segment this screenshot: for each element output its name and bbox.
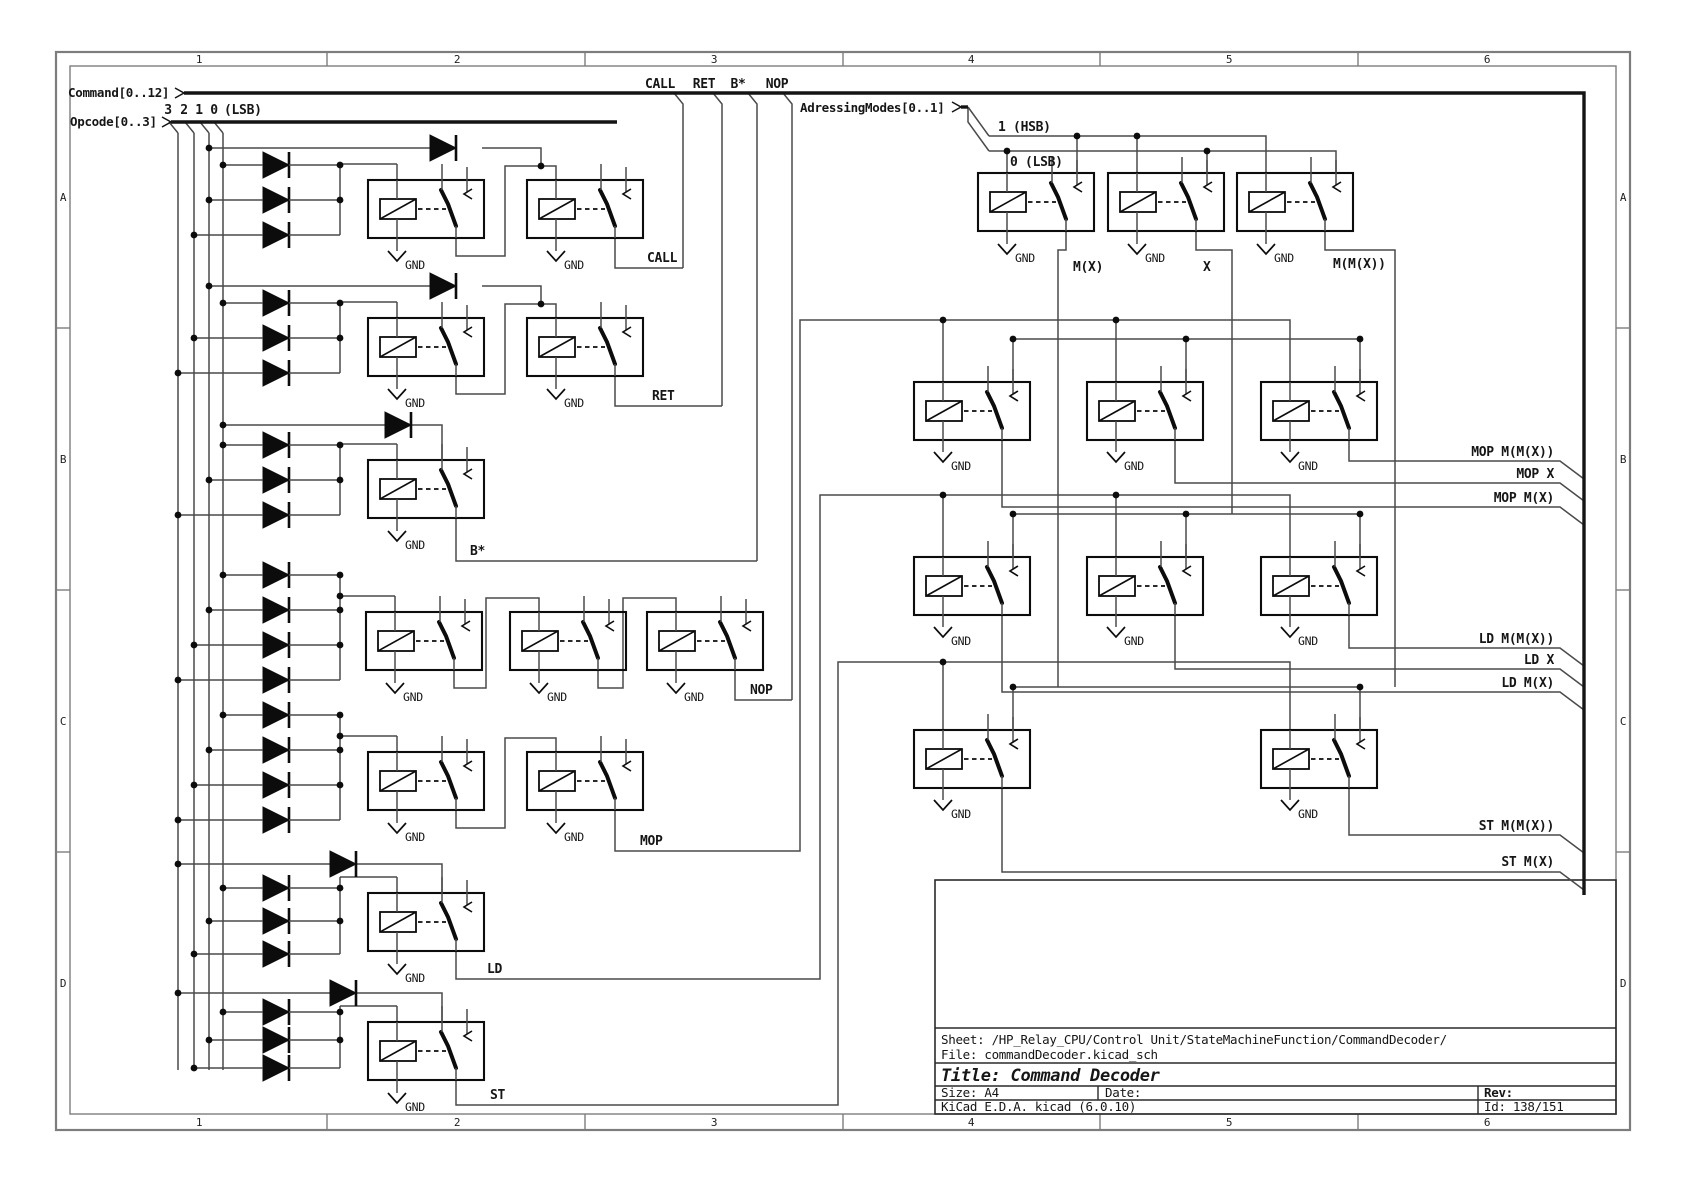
schematic-label: 2 — [180, 103, 188, 118]
junction-dot — [220, 885, 227, 892]
relay-switch-arm — [987, 740, 1002, 776]
junction-dot — [206, 1037, 213, 1044]
titleblock-rev: Rev: — [1484, 1085, 1513, 1100]
diode-triangle — [430, 273, 456, 299]
schematic-label: CALL — [645, 77, 676, 92]
frame-column-ref: 4 — [968, 53, 975, 66]
relay-symbol — [1108, 157, 1224, 231]
junction-dot — [337, 593, 344, 600]
gnd-label: GND — [564, 830, 584, 844]
diode-symbol — [223, 290, 340, 316]
relay-coil-diagonal — [380, 912, 416, 932]
diode-triangle — [263, 360, 289, 386]
relay-coil-diagonal — [659, 631, 695, 651]
diode-triangle — [263, 667, 289, 693]
junction-dot — [175, 817, 182, 824]
gnd-label: GND — [405, 1100, 425, 1114]
relay-switch-arm — [441, 190, 456, 226]
relay-contact-arrow-icon — [464, 902, 472, 912]
gnd-symbol: GND — [388, 376, 425, 410]
junction-dot — [175, 512, 182, 519]
wire — [482, 148, 541, 166]
relay-coil-diagonal — [926, 401, 962, 421]
schematic-label: 0 (LSB) — [1010, 155, 1063, 170]
diode-triangle — [430, 135, 456, 161]
relay-contact-arrow-icon — [1183, 566, 1191, 576]
gnd-symbol: GND — [388, 1080, 425, 1114]
diode-symbol — [330, 980, 356, 1006]
junction-dot — [175, 861, 182, 868]
gnd-chevron-icon — [386, 683, 404, 693]
gnd-chevron-icon — [547, 389, 565, 399]
junction-dot — [175, 990, 182, 997]
junction-dot — [337, 442, 344, 449]
gnd-label: GND — [405, 258, 425, 272]
gnd-chevron-icon — [530, 683, 548, 693]
wire — [713, 93, 722, 406]
relay-contact-arrow-icon — [606, 621, 614, 631]
gnd-label: GND — [564, 258, 584, 272]
diode-triangle — [263, 597, 289, 623]
schematic-label: M(M(X)) — [1333, 257, 1386, 272]
junction-dot — [1357, 684, 1364, 691]
gnd-label: GND — [405, 971, 425, 985]
diode-triangle — [263, 222, 289, 248]
relay-contact-arrow-icon — [1204, 182, 1212, 192]
relay-contact-arrow-icon — [464, 327, 472, 337]
frame-column-ref: 3 — [711, 53, 717, 66]
relay-symbol — [368, 877, 484, 951]
relay-switch-arm — [439, 622, 454, 658]
junction-dot — [538, 301, 545, 308]
diode-triangle — [263, 941, 289, 967]
frame-column-ref: 1 — [196, 1116, 202, 1129]
gnd-chevron-icon — [388, 251, 406, 261]
wire — [968, 107, 989, 136]
diode-symbol — [194, 941, 340, 967]
junction-dot — [1183, 336, 1190, 343]
relay-switch-arm — [720, 622, 735, 658]
junction-dot — [206, 607, 213, 614]
schematic-label: M(X) — [1073, 260, 1103, 275]
wire — [674, 93, 683, 268]
junction-dot — [1074, 133, 1081, 140]
titleblock-id: Id: 138/151 — [1484, 1099, 1563, 1114]
frame-row-ref: B — [1620, 453, 1627, 466]
gnd-chevron-icon — [1257, 244, 1275, 254]
relay-coil-diagonal — [1099, 576, 1135, 596]
relay-contact-arrow-icon — [464, 761, 472, 771]
gnd-label: GND — [951, 459, 971, 473]
junction-dot — [1010, 684, 1017, 691]
gnd-symbol: GND — [547, 238, 584, 272]
diode-triangle — [263, 562, 289, 588]
diode-triangle — [263, 632, 289, 658]
junction-dot — [191, 642, 198, 649]
diode-symbol — [209, 597, 340, 623]
relay-contact-arrow-icon — [623, 761, 631, 771]
junction-dot — [337, 477, 344, 484]
diode-triangle — [330, 851, 356, 877]
relay-switch-arm — [1334, 740, 1349, 776]
wire-layer — [169, 93, 1584, 1105]
gnd-symbol: GND — [388, 518, 425, 552]
relay-switch-arm — [987, 567, 1002, 603]
diode-symbol — [223, 432, 340, 458]
gnd-chevron-icon — [667, 683, 685, 693]
junction-dot — [1134, 133, 1141, 140]
schematic-label: MOP X — [1516, 467, 1554, 482]
diode-triangle — [263, 325, 289, 351]
schematic-page: 112233445566AABBCCDD Sheet: /HP_Relay_CP… — [0, 0, 1684, 1191]
frame-column-ref: 5 — [1226, 53, 1232, 66]
gnd-chevron-icon — [1107, 627, 1125, 637]
relay-symbol — [368, 164, 484, 238]
relay-contact-arrow-icon — [1357, 391, 1365, 401]
diode-triangle — [385, 412, 411, 438]
gnd-chevron-icon — [388, 1093, 406, 1103]
relay-switch-arm — [1160, 567, 1175, 603]
junction-dot — [1010, 511, 1017, 518]
relay-symbol — [366, 596, 482, 670]
gnd-label: GND — [405, 396, 425, 410]
titleblock-sheet-path: Sheet: /HP_Relay_CPU/Control Unit/StateM… — [941, 1032, 1447, 1047]
schematic-label: AdressingModes[0..1] — [800, 100, 945, 115]
relay-contact-arrow-icon — [464, 469, 472, 479]
diode-triangle — [263, 807, 289, 833]
schematic-label: Command[0..12] — [68, 85, 169, 100]
relay-contact-arrow-icon — [1333, 182, 1341, 192]
relay-coil-diagonal — [1249, 192, 1285, 212]
relay-coil-diagonal — [378, 631, 414, 651]
bus-entry-arrow-icon — [952, 102, 961, 112]
diode-triangle — [263, 875, 289, 901]
junction-dot — [337, 607, 344, 614]
titleblock-title: Title: Command Decoder — [941, 1066, 1161, 1086]
junction-dot — [538, 163, 545, 170]
relay-switch-arm — [441, 1032, 456, 1068]
diode-symbol — [178, 502, 340, 528]
gnd-symbol: GND — [1281, 614, 1318, 648]
titleblock-generator: KiCad E.D.A. kicad (6.0.10) — [941, 1099, 1136, 1114]
gnd-label: GND — [1124, 459, 1144, 473]
relay-coil-diagonal — [1099, 401, 1135, 421]
relay-switch-arm — [987, 392, 1002, 428]
diode-symbol — [178, 360, 340, 386]
symbol-layer: GNDGNDGNDGNDGNDGNDGNDGNDGNDGNDGNDGNDGNDG… — [178, 135, 1377, 1114]
relay-switch-arm — [600, 328, 615, 364]
frame-row-ref: A — [60, 191, 67, 204]
relay-coil-diagonal — [926, 576, 962, 596]
schematic-label: 0 — [210, 103, 218, 118]
schematic-label: NOP — [766, 77, 789, 92]
diode-triangle — [263, 467, 289, 493]
junction-dot — [1357, 336, 1364, 343]
gnd-symbol: GND — [1128, 231, 1165, 265]
relay-coil-diagonal — [926, 749, 962, 769]
diode-symbol — [209, 187, 340, 213]
diode-symbol — [223, 152, 340, 178]
frame-row-ref: D — [60, 977, 66, 990]
relay-symbol — [368, 302, 484, 376]
gnd-symbol: GND — [388, 810, 425, 844]
relay-contact-arrow-icon — [623, 327, 631, 337]
junction-dot — [220, 422, 227, 429]
relay-switch-arm — [1181, 183, 1196, 219]
junction-dot — [337, 885, 344, 892]
junction-dot — [220, 712, 227, 719]
diode-symbol — [178, 667, 340, 693]
diode-triangle — [263, 908, 289, 934]
diode-triangle — [263, 999, 289, 1025]
diode-symbol — [223, 999, 340, 1025]
gnd-symbol: GND — [530, 670, 567, 704]
frame-row-ref: D — [1620, 977, 1626, 990]
junction-dot — [1183, 511, 1190, 518]
junction-dot — [337, 335, 344, 342]
relay-contact-arrow-icon — [1357, 566, 1365, 576]
relay-symbol — [914, 714, 1030, 788]
wire — [356, 993, 442, 1022]
junction-dot — [1204, 148, 1211, 155]
frame-row-ref: B — [60, 453, 67, 466]
schematic-label: LD X — [1524, 653, 1555, 668]
junction-dot — [220, 300, 227, 307]
diode-triangle — [263, 772, 289, 798]
gnd-symbol: GND — [1281, 787, 1318, 821]
diode-triangle — [263, 187, 289, 213]
diode-symbol — [430, 273, 456, 299]
relay-switch-arm — [600, 190, 615, 226]
gnd-chevron-icon — [388, 964, 406, 974]
schematic-label: X — [1203, 260, 1211, 275]
frame-column-ref: 6 — [1484, 53, 1490, 66]
diode-symbol — [385, 412, 411, 438]
schematic-label: RET — [652, 389, 675, 404]
wire — [968, 107, 989, 151]
titleblock-size: Size: A4 — [941, 1085, 999, 1100]
junction-dot — [337, 1009, 344, 1016]
relay-switch-arm — [1310, 183, 1325, 219]
schematic-label: 1 — [195, 103, 203, 118]
gnd-symbol: GND — [547, 376, 584, 410]
bus-wire — [184, 93, 1584, 895]
gnd-chevron-icon — [388, 823, 406, 833]
relay-symbol — [1087, 366, 1203, 440]
bus-entry-arrow-icon — [175, 88, 184, 98]
junction-dot — [337, 300, 344, 307]
schematic-label: MOP M(M(X)) — [1471, 445, 1554, 460]
schematic-label: LD M(X) — [1501, 676, 1554, 691]
gnd-symbol: GND — [386, 670, 423, 704]
gnd-chevron-icon — [998, 244, 1016, 254]
gnd-chevron-icon — [388, 531, 406, 541]
relay-switch-arm — [1160, 392, 1175, 428]
diode-symbol — [194, 222, 340, 248]
relay-contact-arrow-icon — [1010, 391, 1018, 401]
gnd-label: GND — [1124, 634, 1144, 648]
schematic-label: B* — [730, 77, 746, 92]
junction-dot — [337, 642, 344, 649]
diode-symbol — [194, 1055, 340, 1081]
gnd-label: GND — [1145, 251, 1165, 265]
relay-contact-arrow-icon — [1010, 739, 1018, 749]
relay-switch-arm — [441, 903, 456, 939]
gnd-label: GND — [1298, 634, 1318, 648]
junction-dot — [220, 1009, 227, 1016]
gnd-chevron-icon — [1128, 244, 1146, 254]
relay-coil-diagonal — [522, 631, 558, 651]
gnd-label: GND — [1298, 807, 1318, 821]
frame-row-ref: C — [1620, 715, 1626, 728]
gnd-chevron-icon — [388, 389, 406, 399]
gnd-chevron-icon — [1281, 452, 1299, 462]
diode-triangle — [330, 980, 356, 1006]
schematic-label: Opcode[0..3] — [70, 114, 157, 129]
gnd-chevron-icon — [1281, 627, 1299, 637]
schematic-canvas: 112233445566AABBCCDD Sheet: /HP_Relay_CP… — [0, 0, 1684, 1191]
wire — [1196, 231, 1232, 514]
gnd-label: GND — [1015, 251, 1035, 265]
relay-symbol — [527, 164, 643, 238]
wire — [456, 495, 1290, 979]
bus-layer — [162, 88, 1584, 895]
relay-symbol — [510, 596, 626, 670]
relay-coil-diagonal — [539, 771, 575, 791]
junction-dot — [191, 951, 198, 958]
schematic-label: MOP M(X) — [1494, 491, 1554, 506]
diode-triangle — [263, 1027, 289, 1053]
relay-symbol — [1261, 541, 1377, 615]
wire — [356, 864, 442, 893]
schematic-label: RET — [693, 77, 716, 92]
relay-switch-arm — [441, 762, 456, 798]
junction-dot — [940, 659, 947, 666]
junction-dot — [206, 477, 213, 484]
gnd-symbol: GND — [1107, 439, 1144, 473]
gnd-symbol: GND — [1257, 231, 1294, 265]
relay-coil-diagonal — [990, 192, 1026, 212]
diode-symbol — [178, 807, 340, 833]
title-block: Sheet: /HP_Relay_CPU/Control Unit/StateM… — [935, 880, 1616, 1114]
gnd-chevron-icon — [547, 251, 565, 261]
gnd-symbol: GND — [934, 614, 971, 648]
junction-dot — [191, 232, 198, 239]
junction-dot — [206, 918, 213, 925]
junction-dot — [175, 677, 182, 684]
gnd-label: GND — [405, 538, 425, 552]
relay-contact-arrow-icon — [1010, 566, 1018, 576]
diode-triangle — [263, 432, 289, 458]
relay-symbol — [1261, 714, 1377, 788]
junction-dot — [220, 162, 227, 169]
gnd-symbol: GND — [547, 810, 584, 844]
diode-symbol — [330, 851, 356, 877]
schematic-label: CALL — [647, 251, 678, 266]
frame-column-ref: 6 — [1484, 1116, 1490, 1129]
gnd-chevron-icon — [934, 452, 952, 462]
relay-coil-diagonal — [539, 337, 575, 357]
relay-contact-arrow-icon — [1183, 391, 1191, 401]
gnd-symbol: GND — [388, 951, 425, 985]
gnd-symbol: GND — [1281, 439, 1318, 473]
frame-column-ref: 5 — [1226, 1116, 1232, 1129]
relay-symbol — [647, 596, 763, 670]
relay-symbol — [1237, 157, 1353, 231]
schematic-label: ST M(X) — [1501, 855, 1554, 870]
gnd-label: GND — [1298, 459, 1318, 473]
wire — [1325, 231, 1395, 687]
junction-dot — [940, 317, 947, 324]
diode-symbol — [223, 875, 340, 901]
schematic-label: LD M(M(X)) — [1479, 632, 1554, 647]
junction-dot — [1113, 492, 1120, 499]
junction-dot — [206, 145, 213, 152]
relay-switch-arm — [1051, 183, 1066, 219]
wire — [1002, 787, 1584, 890]
bus-entry-arrow-icon — [162, 117, 171, 127]
relay-contact-arrow-icon — [1357, 739, 1365, 749]
diode-symbol — [209, 1027, 340, 1053]
diode-triangle — [263, 152, 289, 178]
junction-dot — [191, 335, 198, 342]
junction-dot — [220, 442, 227, 449]
schematic-label: LD — [487, 962, 503, 977]
diode-triangle — [263, 1055, 289, 1081]
diode-symbol — [194, 632, 340, 658]
diode-triangle — [263, 290, 289, 316]
junction-dot — [337, 782, 344, 789]
junction-dot — [337, 1037, 344, 1044]
junction-dot — [1113, 317, 1120, 324]
relay-contact-arrow-icon — [464, 1031, 472, 1041]
wire — [411, 425, 442, 460]
relay-contact-arrow-icon — [464, 189, 472, 199]
relay-coil-diagonal — [380, 771, 416, 791]
frame-column-ref: 3 — [711, 1116, 717, 1129]
gnd-chevron-icon — [547, 823, 565, 833]
relay-symbol — [1087, 541, 1203, 615]
junction-dot — [337, 712, 344, 719]
diode-symbol — [194, 772, 340, 798]
junction-dot — [337, 747, 344, 754]
relay-coil-diagonal — [1273, 401, 1309, 421]
frame-column-ref: 2 — [454, 53, 460, 66]
gnd-symbol: GND — [388, 238, 425, 272]
gnd-chevron-icon — [1107, 452, 1125, 462]
gnd-label: GND — [1274, 251, 1294, 265]
relay-symbol — [368, 736, 484, 810]
gnd-chevron-icon — [934, 800, 952, 810]
schematic-label: B* — [470, 544, 486, 559]
relay-switch-arm — [441, 470, 456, 506]
relay-coil-diagonal — [380, 199, 416, 219]
relay-symbol — [368, 444, 484, 518]
frame-column-ref: 2 — [454, 1116, 460, 1129]
junction-dot — [206, 283, 213, 290]
diode-symbol — [223, 702, 340, 728]
schematic-label: ST — [490, 1088, 506, 1103]
gnd-label: GND — [951, 634, 971, 648]
diode-symbol — [209, 737, 340, 763]
junction-dot — [191, 1065, 198, 1072]
relay-symbol — [914, 366, 1030, 440]
schematic-label: 1 (HSB) — [998, 120, 1051, 135]
gnd-symbol: GND — [934, 787, 971, 821]
titleblock-file-name: File: commandDecoder.kicad_sch — [941, 1047, 1158, 1062]
wire — [482, 286, 541, 304]
relay-coil-diagonal — [1120, 192, 1156, 212]
